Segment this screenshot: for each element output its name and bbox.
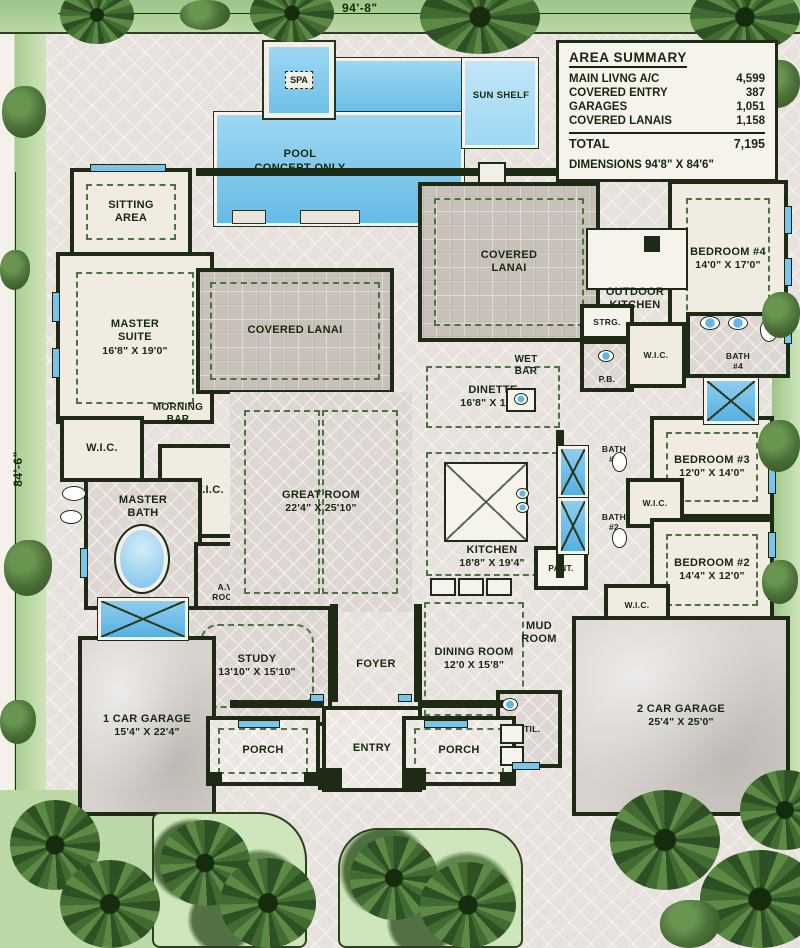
summary-row: COVERED ENTRY387 bbox=[569, 86, 765, 100]
porch-post bbox=[500, 772, 514, 786]
floor-plan-scene: 94'-8" 84'-6" AREA SUMMARY MAIN LIVNG A/… bbox=[0, 0, 800, 948]
window bbox=[52, 348, 60, 378]
room-label: BEDROOM #2 bbox=[674, 557, 750, 570]
spa: SPA bbox=[262, 40, 336, 120]
pool-sun-shelf bbox=[462, 58, 538, 148]
room-label: 1 CAR GARAGE bbox=[103, 713, 191, 726]
porch-post bbox=[304, 772, 318, 786]
room-label: BATH #4 bbox=[726, 351, 750, 371]
label-outdoor-kitchen: OUTDOOR KITCHEN bbox=[580, 286, 690, 312]
pb-sink-icon bbox=[598, 350, 614, 362]
room-dims: 12'0 X 15'8" bbox=[444, 659, 504, 672]
room-label: STUDY bbox=[238, 653, 277, 666]
room-label: BEDROOM #4 bbox=[690, 246, 766, 259]
summary-value: 1,051 bbox=[736, 100, 765, 114]
foyer-west-wall bbox=[330, 604, 338, 702]
room-label: MASTER BATH bbox=[119, 494, 167, 520]
room-wic-master-1: W.I.C. bbox=[60, 416, 144, 482]
room-dims: 13'10" X 15'10" bbox=[218, 666, 296, 679]
porch-post bbox=[208, 772, 222, 786]
summary-label: COVERED LANAIS bbox=[569, 114, 672, 128]
appliance bbox=[486, 578, 512, 596]
room-label: 2 CAR GARAGE bbox=[637, 703, 725, 716]
bath3-shower-icon bbox=[558, 446, 588, 498]
washer-icon bbox=[500, 724, 524, 744]
window bbox=[398, 694, 412, 702]
room-label: SITTING AREA bbox=[108, 199, 154, 225]
bath2-shower-icon bbox=[558, 498, 588, 554]
palm-tree bbox=[220, 858, 316, 948]
entry-pier bbox=[318, 768, 342, 790]
room-label: P.B. bbox=[599, 374, 616, 384]
room-dims: 16'8" X 19'0" bbox=[102, 345, 167, 358]
utility-sink-icon bbox=[502, 698, 518, 711]
room-label: BEDROOM #3 bbox=[674, 454, 750, 467]
bath4-sink-icon bbox=[728, 316, 748, 330]
window bbox=[768, 468, 776, 494]
summary-total-value: 7,195 bbox=[734, 137, 765, 152]
room-dims: 18'8" X 19'4" bbox=[459, 557, 524, 570]
summary-total-label: TOTAL bbox=[569, 137, 610, 152]
room-dims: 15'4" X 22'4" bbox=[114, 726, 179, 739]
window bbox=[784, 258, 792, 286]
palm-tree bbox=[250, 0, 334, 42]
toilet-icon bbox=[62, 486, 86, 501]
outdoor-kitchen-counter bbox=[586, 228, 688, 290]
bath4-shower-icon bbox=[704, 378, 758, 424]
label-mud-room: MUD ROOM bbox=[508, 620, 570, 646]
room-label: GREAT ROOM bbox=[282, 489, 360, 502]
lanai-pillar bbox=[478, 162, 506, 184]
appliance bbox=[430, 578, 456, 596]
top-dimension-label: 94'-8" bbox=[342, 1, 378, 15]
room-label: W.I.C. bbox=[86, 442, 118, 455]
room-label: W.I.C. bbox=[643, 498, 668, 508]
room-label: KITCHEN bbox=[467, 544, 518, 557]
bathtub-icon bbox=[116, 526, 168, 592]
room-label: ENTRY bbox=[353, 742, 391, 755]
room-label: DINING ROOM bbox=[434, 646, 513, 659]
bidet-icon bbox=[60, 510, 82, 524]
foyer-east-wall bbox=[414, 604, 422, 702]
area-summary-box: AREA SUMMARY MAIN LIVNG A/C4,599 COVERED… bbox=[556, 40, 778, 182]
palm-tree bbox=[610, 790, 720, 890]
toilet-icon bbox=[612, 528, 627, 548]
room-label: COVERED LANAI bbox=[248, 324, 343, 337]
palm-tree bbox=[420, 862, 516, 948]
room-wic-bed4: W.I.C. bbox=[626, 322, 686, 388]
summary-label: GARAGES bbox=[569, 100, 627, 114]
room-label: STRG. bbox=[593, 317, 620, 327]
summary-row: MAIN LIVNG A/C4,599 bbox=[569, 72, 765, 86]
summary-row: COVERED LANAIS1,158 bbox=[569, 114, 765, 128]
pool-upper-section bbox=[330, 58, 464, 120]
appliance bbox=[458, 578, 484, 596]
window bbox=[768, 532, 776, 558]
summary-row: GARAGES1,051 bbox=[569, 100, 765, 114]
room-great-room: GREAT ROOM 22'4" X 25'10" bbox=[230, 392, 412, 612]
room-label: W.I.C. bbox=[625, 600, 650, 610]
label-morning-bar: MORNING BAR bbox=[138, 402, 218, 426]
palm-tree bbox=[60, 0, 134, 44]
room-covered-lanai-west: COVERED LANAI bbox=[196, 268, 394, 394]
kitchen-sink-icon bbox=[516, 502, 529, 513]
summary-label: COVERED ENTRY bbox=[569, 86, 668, 100]
left-dimension-label: 84'-6" bbox=[11, 445, 25, 493]
room-dims: 22'4" X 25'10" bbox=[285, 502, 356, 515]
summary-value: 1,158 bbox=[736, 114, 765, 128]
summary-label: MAIN LIVNG A/C bbox=[569, 72, 659, 86]
room-sitting-area: SITTING AREA bbox=[70, 168, 192, 256]
sun-shelf-label: SUN SHELF bbox=[466, 90, 536, 101]
summary-value: 4,599 bbox=[736, 72, 765, 86]
room-dims: 25'4" X 25'0" bbox=[648, 716, 713, 729]
room-covered-lanai-central: COVERED LANAI bbox=[418, 182, 600, 342]
room-dims: 14'0" X 17'0" bbox=[695, 259, 760, 272]
area-summary-title: AREA SUMMARY bbox=[569, 50, 687, 68]
summary-total-row: TOTAL7,195 bbox=[569, 132, 765, 152]
room-dims: 12'0" X 14'0" bbox=[679, 467, 744, 480]
toilet-icon bbox=[612, 452, 627, 472]
room-label: PORCH bbox=[438, 744, 479, 757]
pool-concept-label: POOL CONCEPT ONLY bbox=[240, 148, 360, 176]
master-shower-icon bbox=[98, 598, 188, 640]
room-label: W.I.C. bbox=[644, 350, 669, 360]
palm-tree bbox=[420, 0, 540, 54]
grill-icon bbox=[644, 236, 660, 252]
window bbox=[784, 206, 792, 234]
wet-bar-sink-icon bbox=[514, 393, 528, 405]
room-master-suite: MASTER SUITE 16'8" X 19'0" bbox=[56, 252, 214, 424]
room-garage-1: 1 CAR GARAGE 15'4" X 22'4" bbox=[78, 636, 216, 816]
porch-post bbox=[406, 772, 420, 786]
bath4-sink-icon bbox=[700, 316, 720, 330]
summary-dimensions: DIMENSIONS 94'8" X 84'6" bbox=[569, 159, 765, 171]
window bbox=[52, 292, 60, 322]
window bbox=[238, 720, 280, 728]
label-foyer: FOYER bbox=[346, 658, 406, 671]
room-label: COVERED LANAI bbox=[481, 249, 538, 275]
room-label: MASTER SUITE bbox=[111, 318, 159, 344]
room-label: PORCH bbox=[242, 744, 283, 757]
front-wall-east bbox=[418, 700, 506, 708]
palm-tree bbox=[60, 860, 160, 948]
tree bbox=[660, 900, 720, 948]
kitchen-sink-icon bbox=[516, 488, 529, 499]
window bbox=[310, 694, 324, 702]
pool-step bbox=[232, 210, 266, 224]
window bbox=[80, 548, 88, 578]
window bbox=[424, 720, 468, 728]
room-dims: 14'4" X 12'0" bbox=[679, 570, 744, 583]
kitchen-island bbox=[444, 462, 528, 542]
pool-bench bbox=[300, 210, 360, 224]
spa-label: SPA bbox=[285, 71, 313, 89]
label-wet-bar: WET BAR bbox=[500, 354, 552, 378]
window bbox=[90, 164, 166, 172]
summary-value: 387 bbox=[746, 86, 765, 100]
window bbox=[512, 762, 540, 770]
